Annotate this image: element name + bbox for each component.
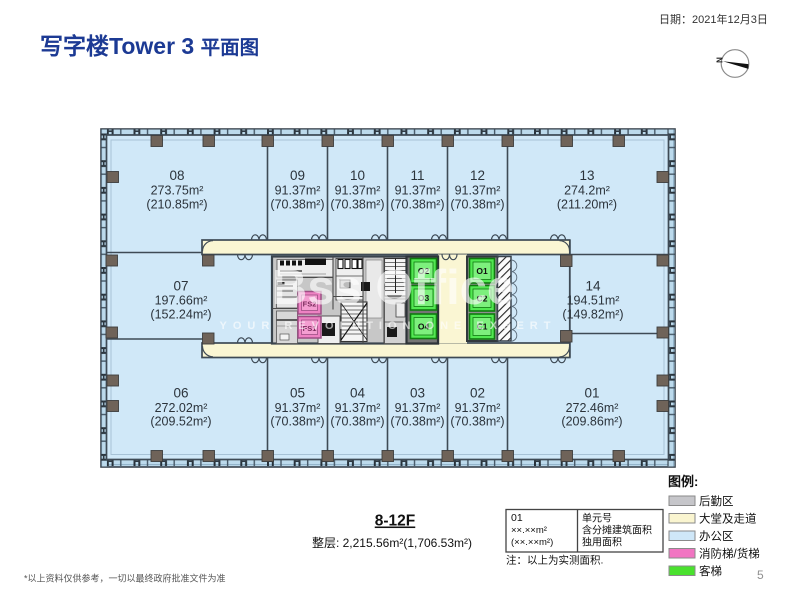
svg-text:(209.86m²): (209.86m²) — [561, 415, 622, 429]
svg-text:独用面积: 独用面积 — [582, 536, 622, 549]
svg-text:91.37m²: 91.37m² — [335, 401, 381, 415]
svg-text:(××.××m²): (××.××m²) — [511, 537, 553, 548]
svg-text:91.37m²: 91.37m² — [455, 184, 501, 198]
svg-text:91.37m²: 91.37m² — [275, 184, 321, 198]
svg-text:09: 09 — [290, 168, 305, 183]
svg-text:02: 02 — [470, 386, 485, 401]
svg-text:(70.38m²): (70.38m²) — [330, 415, 384, 429]
svg-text:后勤区: 后勤区 — [699, 495, 734, 508]
svg-text:194.51m²: 194.51m² — [567, 294, 620, 308]
svg-text:5: 5 — [757, 568, 764, 582]
svg-text:272.02m²: 272.02m² — [155, 401, 208, 415]
svg-text:(70.38m²): (70.38m²) — [330, 198, 384, 212]
svg-text:91.37m²: 91.37m² — [395, 184, 441, 198]
svg-text:12: 12 — [470, 168, 485, 183]
svg-text:14: 14 — [585, 279, 601, 294]
svg-text:04: 04 — [350, 386, 366, 401]
svg-text:01: 01 — [511, 512, 523, 524]
svg-text:(70.38m²): (70.38m²) — [390, 415, 444, 429]
svg-text:03: 03 — [410, 386, 425, 401]
svg-text:图例:: 图例: — [668, 474, 698, 489]
svg-text:272.46m²: 272.46m² — [566, 401, 619, 415]
svg-text:(210.85m²): (210.85m²) — [146, 198, 207, 212]
svg-text:(70.38m²): (70.38m²) — [450, 415, 504, 429]
svg-text:(209.52m²): (209.52m²) — [150, 415, 211, 429]
svg-text:Bss Office: Bss Office — [272, 261, 514, 315]
svg-text:91.37m²: 91.37m² — [455, 401, 501, 415]
svg-text:(70.38m²): (70.38m²) — [450, 198, 504, 212]
svg-text:(70.38m²): (70.38m²) — [270, 198, 324, 212]
svg-text:*以上资料仅供参考，一切以最终政府批准文件为准: *以上资料仅供参考，一切以最终政府批准文件为准 — [24, 573, 226, 584]
svg-text:10: 10 — [350, 168, 365, 183]
svg-text:(70.38m²): (70.38m²) — [270, 415, 324, 429]
svg-text:含分摊建筑面积: 含分摊建筑面积 — [582, 524, 652, 537]
svg-text:06: 06 — [173, 386, 188, 401]
svg-text:××.××m²: ××.××m² — [511, 525, 547, 536]
svg-text:写字楼Tower 3 平面图: 写字楼Tower 3 平面图 — [40, 33, 259, 59]
svg-text:单元号: 单元号 — [582, 513, 612, 525]
svg-text:N: N — [715, 57, 724, 63]
svg-text:YOUR REVOLUTION ONE EXPERT: YOUR REVOLUTION ONE EXPERT — [220, 320, 557, 332]
svg-text:(211.20m²): (211.20m²) — [557, 198, 617, 212]
svg-text:01: 01 — [584, 386, 599, 401]
svg-text:消防梯/货梯: 消防梯/货梯 — [699, 547, 760, 561]
svg-text:8-12F: 8-12F — [375, 513, 416, 530]
svg-text:05: 05 — [290, 386, 305, 401]
svg-text:大堂及走道: 大堂及走道 — [699, 512, 757, 526]
svg-text:274.2m²: 274.2m² — [564, 184, 610, 198]
svg-text:客梯: 客梯 — [699, 564, 722, 578]
svg-text:91.37m²: 91.37m² — [335, 184, 381, 198]
svg-text:整层: 2,215.56m²(1,706.53m²): 整层: 2,215.56m²(1,706.53m²) — [312, 535, 472, 550]
svg-text:197.66m²: 197.66m² — [155, 294, 208, 308]
svg-text:(149.82m²): (149.82m²) — [562, 308, 623, 322]
svg-text:273.75m²: 273.75m² — [151, 184, 204, 198]
svg-text:11: 11 — [410, 168, 424, 183]
svg-text:91.37m²: 91.37m² — [275, 401, 321, 415]
svg-text:(70.38m²): (70.38m²) — [390, 198, 444, 212]
svg-text:08: 08 — [169, 168, 184, 183]
svg-text:91.37m²: 91.37m² — [395, 401, 441, 415]
svg-text:13: 13 — [579, 168, 594, 183]
svg-text:日期：2021年12月3日: 日期：2021年12月3日 — [659, 12, 768, 26]
svg-text:办公区: 办公区 — [699, 529, 734, 543]
svg-text:注：以上为实测面积.: 注：以上为实测面积. — [506, 554, 603, 567]
svg-text:(152.24m²): (152.24m²) — [150, 308, 211, 322]
svg-text:07: 07 — [173, 279, 188, 294]
